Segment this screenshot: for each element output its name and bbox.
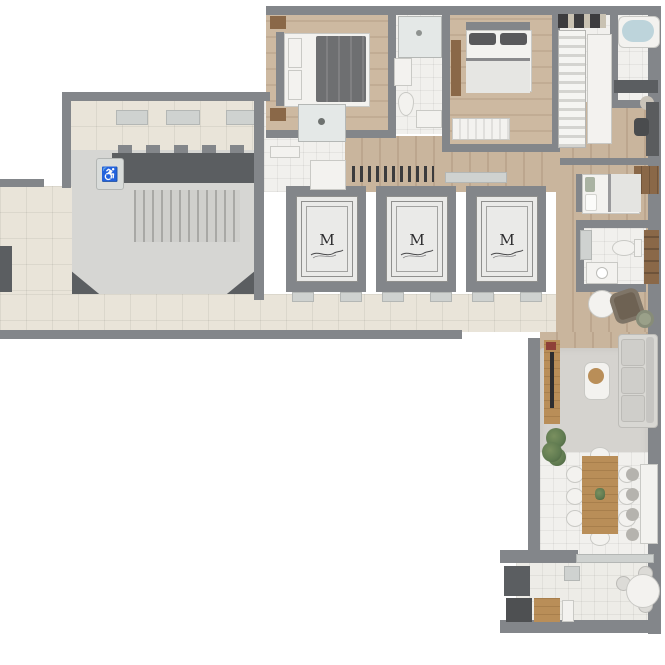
stair-step-nub [202,145,216,153]
elevator-sill [340,292,362,302]
single-bed-pillow [585,194,597,211]
bar-stool [626,508,639,521]
balcony-cabinet [504,566,530,596]
bbq-steps [562,600,574,622]
bathtub-water [622,20,654,42]
coffee-table-tray [588,368,604,384]
plant [542,442,562,462]
stair-right-wall [254,100,264,300]
closet-shelf-boxes [558,14,606,28]
small-bath-top-wall [576,220,660,228]
stair-upper-flight-slab [112,153,254,183]
stair-step-nub [230,145,244,153]
sofa-cushion [621,395,645,422]
bedroom2-bottom-wall [442,144,560,152]
elevator-logo-swoosh [310,248,344,260]
sofa-cushion [621,367,645,394]
hall-shower-head [318,118,325,125]
sofa-back [646,337,654,423]
bedroom2-wardrobe [451,40,461,96]
bed1-blanket [316,36,366,102]
bed2-blanket [466,58,530,93]
toilet [612,240,636,256]
elevator-door-3[interactable]: M [476,196,538,282]
sink-basin [596,267,608,279]
stair-step-nub [118,145,132,153]
bed1-headboard [276,32,284,106]
bathroom1-sink [416,110,442,128]
stair-treads [134,190,240,242]
stair-left-wall [62,92,71,188]
elevator-monogram: M [409,233,424,248]
elevator-door-2[interactable]: M [386,196,448,282]
shoe-rack [352,166,434,182]
elevator-logo-swoosh [400,248,434,260]
elevator-shaft-1: M [286,186,366,292]
bathroom1-right-wall [442,6,450,152]
stair-step-nub [146,145,160,153]
laundry-stack [394,58,412,86]
balcony-table [626,574,660,608]
balcony-top-wall [500,550,578,563]
hall-bath-bench [270,146,300,158]
shower-drain [416,30,422,36]
stair-step-nub [174,145,188,153]
bar-stool [626,528,639,541]
closet-cabinet [587,34,612,144]
bed1-pillow [288,38,302,68]
wall-mounted-box [564,566,580,581]
wing-left-wall [528,338,540,554]
bed2-pillow [500,33,527,45]
table-centerpiece [595,488,605,500]
left-hall-top-wall [0,179,44,187]
bed2-headboard [466,22,530,30]
single-bed-blanket [608,174,641,212]
bed2-pillow [469,33,496,45]
dressing-chair [634,118,649,136]
master-vanity [614,80,658,93]
skylight [166,110,200,125]
toilet-tank [634,239,642,257]
elevator-sill [430,292,452,302]
elevator-sill [382,292,404,302]
nook-pouf [636,310,654,328]
elevator-sill [520,292,542,302]
top-left-wall [62,92,270,101]
single-bedroom-top-wall [560,158,660,165]
closet-hanging-rail [558,30,586,148]
elevator-shaft-3: M [466,186,546,292]
floor-plan: ♿ M M [0,0,665,665]
elevator-logo-swoosh [490,248,524,260]
bar-counter [640,464,658,544]
sofa-cushion [621,339,645,366]
shower-area [398,16,442,58]
elevator-sill [292,292,314,302]
balcony-sliding-door [576,554,654,563]
bed2-bench [452,118,510,140]
small-bath-shower [580,230,592,260]
bed1-pillow [288,70,302,100]
hall-bath-vanity [310,160,346,190]
elevator-shaft-2: M [376,186,456,292]
corridor-bottom-wall [0,330,462,339]
single-bed-pillow [585,177,595,192]
bed1-nightstand [270,16,286,29]
elevator-monogram: M [319,233,334,248]
bbq-counter [534,598,560,622]
bar-stool [626,488,639,501]
bar-stool [626,468,639,481]
left-hall-column [0,246,12,292]
elevator-sill [472,292,494,302]
elevator-door-1[interactable]: M [296,196,358,282]
tv-screen [550,352,554,408]
tv-decor [546,342,556,350]
bath-shelf-cabinet [644,230,659,284]
upper-corridor-floor [70,100,256,152]
console-table [445,172,507,183]
elevator-monogram: M [499,233,514,248]
bbq-grill [506,598,532,622]
accessibility-icon: ♿ [96,158,124,190]
skylight [116,110,148,125]
bed1-nightstand [270,108,286,121]
